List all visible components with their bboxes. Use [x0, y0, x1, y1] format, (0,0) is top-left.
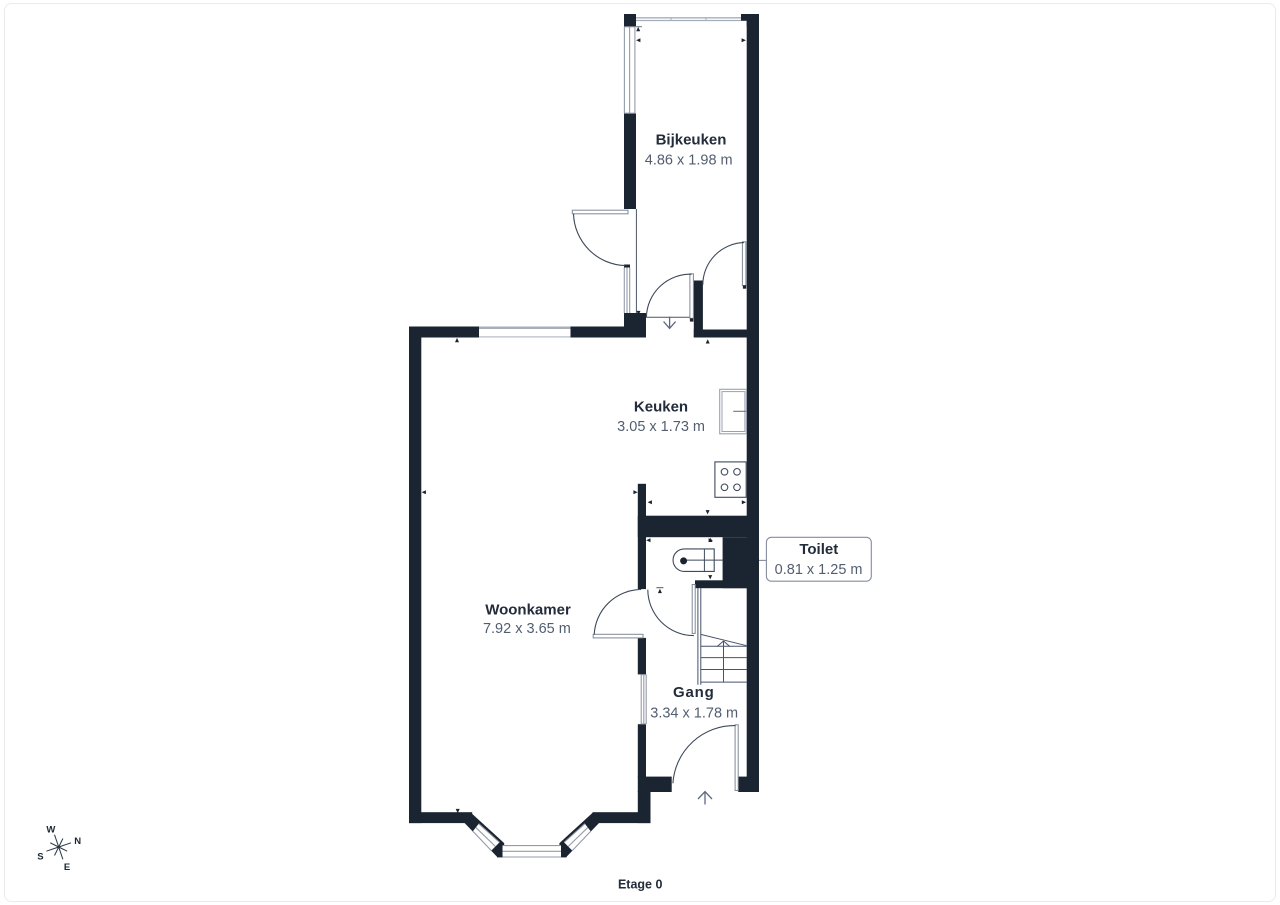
- svg-text:S: S: [37, 851, 43, 862]
- svg-text:3.05 x 1.73 m: 3.05 x 1.73 m: [617, 419, 705, 435]
- svg-text:0.81 x 1.25 m: 0.81 x 1.25 m: [775, 562, 863, 578]
- svg-text:Woonkamer: Woonkamer: [485, 601, 571, 618]
- svg-text:W: W: [46, 825, 55, 836]
- svg-text:Keuken: Keuken: [634, 398, 688, 415]
- svg-text:N: N: [74, 836, 81, 847]
- svg-text:Toilet: Toilet: [799, 541, 838, 558]
- svg-text:4.86 x 1.98 m: 4.86 x 1.98 m: [645, 152, 733, 168]
- svg-text:7.92 x 3.65 m: 7.92 x 3.65 m: [483, 621, 571, 637]
- svg-text:E: E: [64, 862, 70, 873]
- svg-text:Bijkeuken: Bijkeuken: [656, 131, 727, 148]
- svg-text:3.34 x 1.78 m: 3.34 x 1.78 m: [650, 705, 738, 721]
- svg-text:Gang: Gang: [673, 684, 715, 701]
- svg-text:Etage 0: Etage 0: [618, 877, 663, 891]
